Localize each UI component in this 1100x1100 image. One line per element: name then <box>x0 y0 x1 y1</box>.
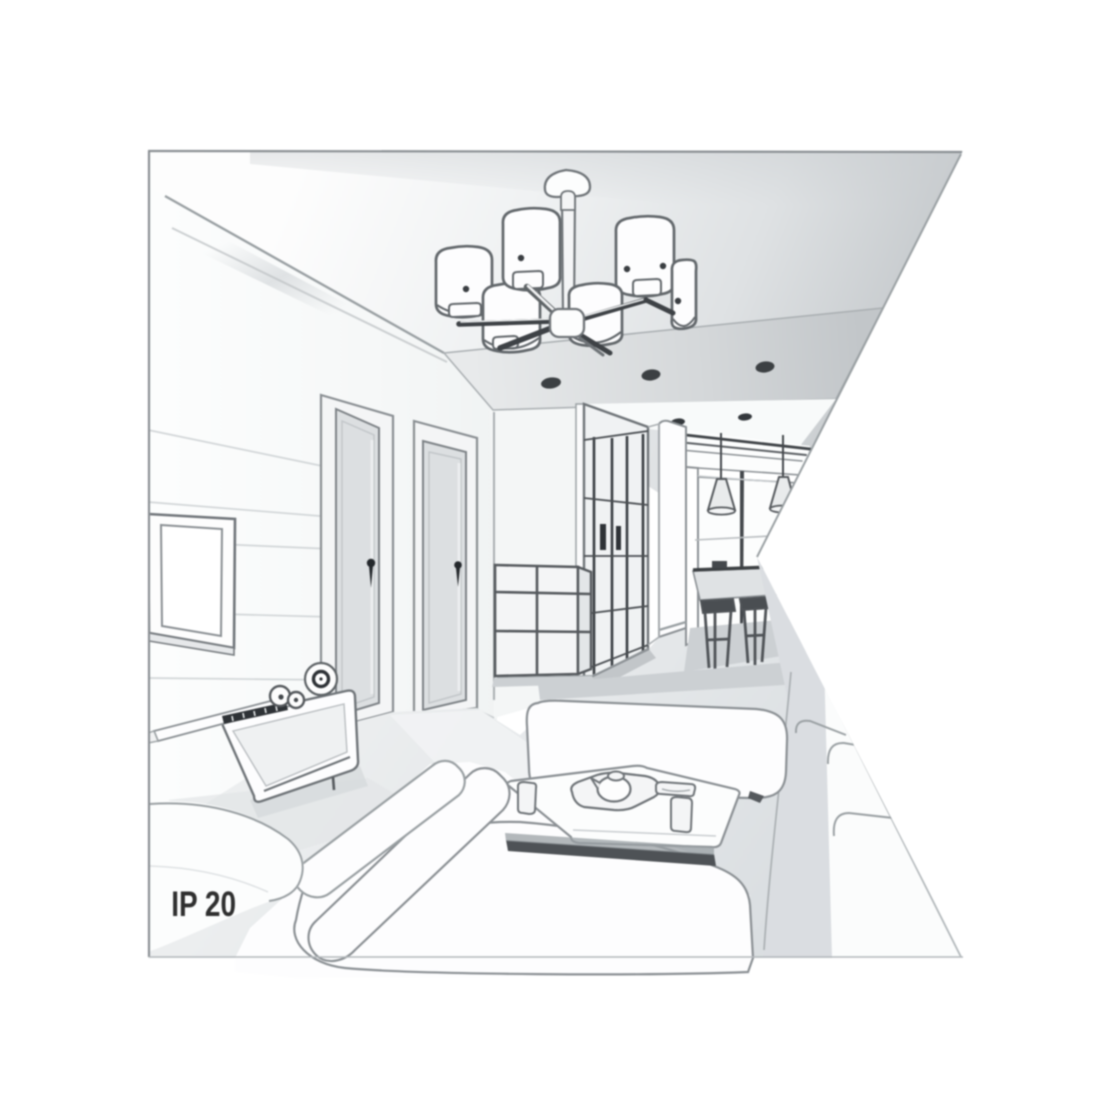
svg-text:IP 20: IP 20 <box>171 884 236 924</box>
